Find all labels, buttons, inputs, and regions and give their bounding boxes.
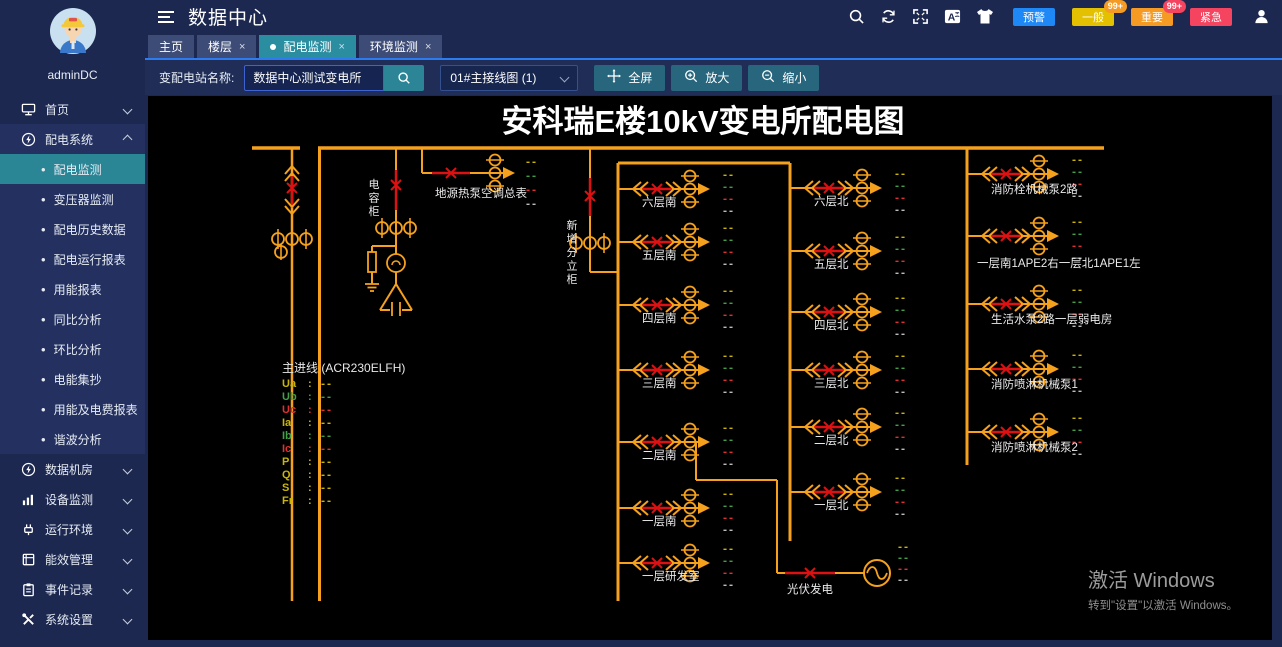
svg-text:--: --	[722, 387, 734, 398]
feeder-south-0[interactable]: --------六层南	[618, 170, 734, 217]
alarm-badges: 预警一般99+重要99+紧急	[1013, 8, 1232, 26]
svg-text:--: --	[525, 199, 537, 210]
zoom-out-icon	[761, 69, 775, 86]
badge-urgent[interactable]: 紧急	[1190, 8, 1232, 26]
svg-text:--: --	[320, 483, 332, 494]
sidebar-item-label: 配电系统	[45, 131, 93, 148]
device-icon	[20, 491, 36, 507]
feeder-north-0[interactable]: --------六层北	[790, 169, 906, 216]
svg-text:激活 Windows: 激活 Windows	[1088, 569, 1215, 592]
sidebar-item-label: 配电历史数据	[54, 221, 126, 238]
bullet-icon: •	[41, 193, 46, 206]
button-label: 全屏	[628, 69, 652, 86]
header-tools: A预警一般99+重要99+紧急	[848, 8, 1270, 26]
svg-text:三层南: 三层南	[642, 376, 677, 390]
sidebar-item-device-monitor[interactable]: 设备监测	[0, 484, 145, 514]
svg-text:--: --	[894, 408, 906, 419]
svg-text:二层南: 二层南	[642, 448, 677, 462]
feeder-north-3[interactable]: --------三层北	[790, 351, 906, 398]
sidebar-item-label: 电能集抄	[54, 371, 102, 388]
feeder-south-5[interactable]: --------一层南	[618, 489, 734, 536]
svg-text::: :	[308, 482, 312, 494]
svg-text:安科瑞E楼10kV变电所配电图: 安科瑞E楼10kV变电所配电图	[501, 104, 904, 139]
svg-text:--: --	[722, 459, 734, 470]
svg-text:--: --	[722, 375, 734, 386]
feeder-right-4[interactable]: --------消防喷淋机械泵2	[967, 413, 1083, 460]
sidebar-item-label: 配电监测	[54, 161, 102, 178]
power-icon	[20, 131, 36, 147]
svg-text:--: --	[894, 473, 906, 484]
svg-text:--: --	[1071, 167, 1083, 178]
svg-text:--: --	[722, 194, 734, 205]
capacitor-cabinet-branch[interactable]: 电容柜	[365, 148, 416, 316]
svg-text:--: --	[894, 420, 906, 431]
bullet-icon: •	[41, 433, 46, 446]
svg-text:--: --	[525, 157, 537, 168]
svg-text:--: --	[722, 544, 734, 555]
svg-text:--: --	[894, 193, 906, 204]
svg-text:--: --	[722, 259, 734, 270]
chevron-down-icon	[123, 465, 133, 475]
svg-text:三层北: 三层北	[814, 377, 849, 390]
svg-text:消防栓机械泵2路: 消防栓机械泵2路	[991, 182, 1078, 196]
feeder-south-3[interactable]: --------三层南	[618, 351, 734, 398]
svg-text:--: --	[894, 387, 906, 398]
settings-icon	[20, 611, 36, 627]
badge-label: 一般	[1082, 9, 1104, 25]
svg-text:六层北: 六层北	[814, 195, 849, 208]
svg-text:Fr: Fr	[282, 495, 294, 507]
sidebar-item-system-settings[interactable]: 系统设置	[0, 604, 145, 634]
sidebar-item-label: 首页	[45, 101, 69, 118]
svg-text:--: --	[722, 513, 734, 524]
feeder-north-2[interactable]: --------四层北	[790, 293, 906, 340]
active-dot-icon	[270, 44, 276, 50]
close-icon[interactable]: ×	[425, 41, 431, 53]
toolbar: 变配电站名称: 01#主接线图 (1) 全屏放大缩小	[145, 60, 1282, 95]
svg-text:--: --	[894, 497, 906, 508]
feeder-right-3[interactable]: --------消防喷淋机械泵1	[967, 350, 1083, 397]
bullet-icon: •	[41, 253, 46, 266]
refresh-icon[interactable]	[880, 8, 897, 25]
svg-text:--: --	[1071, 285, 1083, 296]
station-name-input[interactable]	[244, 65, 384, 91]
chevron-down-icon	[123, 615, 133, 625]
sidebar-item-power-monitor[interactable]: •配电监测	[0, 154, 145, 184]
svg-text:--: --	[320, 405, 332, 416]
badge-label: 重要	[1141, 9, 1163, 25]
svg-text:--: --	[894, 351, 906, 362]
badge-count: 99+	[1104, 0, 1127, 13]
svg-text:--: --	[320, 392, 332, 403]
diagram-select-value: 01#主接线图 (1)	[450, 69, 536, 86]
bullet-icon: •	[41, 373, 46, 386]
svg-text:光伏发电: 光伏发电	[787, 582, 833, 596]
svg-text:消防喷淋机械泵2: 消防喷淋机械泵2	[991, 440, 1078, 454]
svg-text:消防喷淋机械泵1: 消防喷淋机械泵1	[991, 377, 1078, 391]
feeder-right-1[interactable]: --------一层南1APE2右一层北1APE1左	[967, 217, 1141, 270]
sidebar-item-harmonic-analysis[interactable]: •谐波分析	[0, 424, 145, 454]
svg-text:--: --	[894, 375, 906, 386]
svg-text:--: --	[722, 556, 734, 567]
bullet-icon: •	[41, 223, 46, 236]
svg-text:四层北: 四层北	[814, 319, 849, 332]
sidebar-item-power-history[interactable]: •配电历史数据	[0, 214, 145, 244]
fullscreen-icon[interactable]	[912, 8, 929, 25]
sidebar: adminDC 首页配电系统•配电监测•变压器监测•配电历史数据•配电运行报表•…	[0, 0, 145, 647]
sidebar-item-label: 事件记录	[45, 581, 93, 598]
svg-text:--: --	[722, 501, 734, 512]
svg-text:--: --	[894, 181, 906, 192]
chevron-down-icon	[560, 73, 570, 83]
svg-text:--: --	[894, 244, 906, 255]
svg-text:柜: 柜	[369, 205, 380, 218]
data-room-icon	[20, 461, 36, 477]
sidebar-item-label: 用能及电费报表	[54, 401, 138, 418]
svg-text::: :	[308, 417, 312, 429]
main-incoming-panel: 主进线 (ACR230ELFH)Ua:--Ub:--Uc:--Ia:--Ib:-…	[282, 361, 405, 507]
sidebar-item-label: 环比分析	[54, 341, 102, 358]
svg-text:--: --	[320, 379, 332, 390]
svg-text:--: --	[894, 432, 906, 443]
app-root: { "sidebar": { "username": "adminDC", "i…	[0, 0, 1282, 647]
move-icon	[607, 69, 621, 86]
chevron-up-icon	[123, 135, 133, 145]
tab-env-monitor[interactable]: 环境监测×	[359, 35, 442, 58]
env-icon	[20, 521, 36, 537]
feeder-right-2[interactable]: --------生活水泵2路一层弱电房	[967, 285, 1112, 332]
svg-text:--: --	[722, 206, 734, 217]
svg-text:--: --	[1071, 425, 1083, 436]
feeder-south-4[interactable]: --------二层南	[618, 423, 734, 470]
diagram-title: 安科瑞E楼10kV变电所配电图	[501, 104, 904, 139]
bullet-icon: •	[41, 313, 46, 326]
tab-label: 配电监测	[283, 38, 331, 55]
svg-text:一层研发室: 一层研发室	[642, 569, 700, 583]
bullet-icon: •	[41, 163, 46, 176]
sidebar-item-label: 运行环境	[45, 521, 93, 538]
chevron-down-icon	[123, 555, 133, 565]
svg-text::: :	[308, 430, 312, 442]
svg-text:--: --	[320, 418, 332, 429]
svg-text:--: --	[722, 435, 734, 446]
sidebar-item-meter-reading[interactable]: •电能集抄	[0, 364, 145, 394]
svg-text:--: --	[722, 286, 734, 297]
badge-count: 99+	[1163, 0, 1186, 13]
sidebar-item-energy-mgmt[interactable]: 能效管理	[0, 544, 145, 574]
svg-text:--: --	[320, 470, 332, 481]
sidebar-item-label: 同比分析	[54, 311, 102, 328]
sidebar-item-label: 设备监测	[45, 491, 93, 508]
feeder-north-4[interactable]: --------二层北	[790, 408, 906, 455]
svg-text:一层北: 一层北	[814, 499, 849, 512]
svg-text:--: --	[894, 256, 906, 267]
sidebar-item-label: 配电运行报表	[54, 251, 126, 268]
sidebar-item-label: 数据机房	[45, 461, 93, 478]
feeder-north-1[interactable]: --------五层北	[790, 232, 906, 279]
badge-label: 紧急	[1200, 9, 1222, 25]
svg-text:容: 容	[369, 191, 380, 205]
feeder-right-0[interactable]: --------消防栓机械泵2路	[967, 155, 1083, 202]
svg-text:--: --	[722, 247, 734, 258]
svg-text:--: --	[894, 169, 906, 180]
zoom-in-icon	[684, 69, 698, 86]
svg-text:--: --	[897, 542, 909, 553]
top-header: 数据中心 A预警一般99+重要99+紧急	[145, 0, 1282, 33]
svg-text:--: --	[722, 525, 734, 536]
svg-text:生活水泵2路一层弱电房: 生活水泵2路一层弱电房	[991, 312, 1112, 326]
sidebar-item-yoy-analysis[interactable]: •同比分析	[0, 304, 145, 334]
bullet-icon: •	[41, 283, 46, 296]
svg-text:--: --	[722, 223, 734, 234]
svg-text:--: --	[1071, 350, 1083, 361]
svg-text:--: --	[1071, 413, 1083, 424]
svg-text:柜: 柜	[567, 273, 578, 286]
badge-warning[interactable]: 预警	[1013, 8, 1055, 26]
translate-icon[interactable]: A	[944, 8, 961, 25]
svg-text:--: --	[722, 235, 734, 246]
svg-text:--: --	[894, 268, 906, 279]
svg-text:--: --	[894, 485, 906, 496]
svg-text:转到"设置"以激活 Windows。: 转到"设置"以激活 Windows。	[1088, 598, 1238, 612]
svg-text:--: --	[894, 317, 906, 328]
svg-text:新: 新	[567, 218, 578, 232]
svg-text:--: --	[320, 431, 332, 442]
svg-text:--: --	[722, 363, 734, 374]
svg-text:--: --	[894, 329, 906, 340]
svg-text:立: 立	[567, 259, 578, 273]
svg-text:--: --	[722, 298, 734, 309]
svg-text:--: --	[722, 351, 734, 362]
sidebar-item-power-system[interactable]: 配电系统	[0, 124, 145, 154]
svg-text:--: --	[894, 293, 906, 304]
page-title: 数据中心	[188, 3, 268, 30]
sidebar-item-energy-fee-report[interactable]: •用能及电费报表	[0, 394, 145, 424]
svg-text:Ib: Ib	[282, 430, 292, 442]
diagram-canvas: 安科瑞E楼10kV变电所配电图电容柜--------地源热泵空调总表新增分立柜主…	[148, 96, 1272, 640]
svg-text:--: --	[722, 489, 734, 500]
tab-home[interactable]: 主页	[148, 35, 194, 58]
tab-power-monitor[interactable]: 配电监测×	[259, 35, 355, 58]
svg-text:Uc: Uc	[282, 404, 296, 416]
svg-text:--: --	[894, 509, 906, 520]
svg-text:五层北: 五层北	[814, 258, 849, 271]
sidebar-item-power-run-report[interactable]: •配电运行报表	[0, 244, 145, 274]
windows-watermark: 激活 Windows转到"设置"以激活 Windows。	[1088, 569, 1238, 612]
sidebar-item-event-log[interactable]: 事件记录	[0, 574, 145, 604]
bullet-icon: •	[41, 343, 46, 356]
tab-label: 主页	[159, 38, 183, 55]
svg-text:--: --	[722, 447, 734, 458]
button-label: 放大	[705, 69, 729, 86]
svg-text:主进线 (ACR230ELFH): 主进线 (ACR230ELFH)	[282, 361, 405, 375]
svg-text:--: --	[320, 496, 332, 507]
feeder-north-5[interactable]: --------一层北	[790, 473, 906, 520]
sidebar-item-runtime-env[interactable]: 运行环境	[0, 514, 145, 544]
feeder-south-6[interactable]: --------一层研发室	[618, 544, 734, 591]
svg-text:--: --	[1071, 241, 1083, 252]
ground-source-pump-feeder[interactable]: --------地源热泵空调总表	[422, 148, 537, 210]
station-search-button[interactable]	[384, 65, 424, 91]
badge-label: 预警	[1023, 9, 1045, 25]
svg-text:一层南1APE2右一层北1APE1左: 一层南1APE2右一层北1APE1左	[977, 256, 1141, 270]
svg-text:--: --	[525, 171, 537, 182]
theme-icon[interactable]	[976, 8, 994, 25]
close-icon[interactable]: ×	[239, 41, 245, 53]
chevron-down-icon	[123, 105, 133, 115]
svg-text:四层南: 四层南	[642, 311, 677, 325]
svg-text::: :	[308, 456, 312, 468]
zoom-out-button[interactable]: 缩小	[748, 65, 819, 91]
tab-label: 楼层	[208, 38, 232, 55]
sidebar-item-home[interactable]: 首页	[0, 94, 145, 124]
feeder-south-1[interactable]: --------五层南	[618, 223, 734, 270]
svg-text:--: --	[1071, 229, 1083, 240]
sidebar-item-transformer-monitor[interactable]: •变压器监测	[0, 184, 145, 214]
svg-text::: :	[308, 443, 312, 455]
energy-icon	[20, 551, 36, 567]
svg-text:电: 电	[369, 178, 380, 191]
avatar[interactable]	[50, 8, 96, 54]
svg-text:--: --	[320, 457, 332, 468]
svg-text::: :	[308, 469, 312, 481]
svg-text:--: --	[894, 444, 906, 455]
svg-text:--: --	[897, 553, 909, 564]
sidebar-item-label: 能效管理	[45, 551, 93, 568]
badge-important[interactable]: 重要99+	[1131, 8, 1173, 26]
svg-text:A: A	[948, 12, 956, 23]
svg-text:--: --	[897, 575, 909, 586]
svg-text:--: --	[722, 322, 734, 333]
svg-text:--: --	[722, 170, 734, 181]
svg-text:--: --	[1071, 362, 1083, 373]
avatar-wrap: adminDC	[0, 0, 145, 82]
svg-text:--: --	[897, 564, 909, 575]
main-area: 数据中心 A预警一般99+重要99+紧急 主页楼层×配电监测×环境监测× 变配电…	[145, 0, 1282, 647]
bullet-icon: •	[41, 403, 46, 416]
sidebar-item-label: 变压器监测	[54, 191, 114, 208]
svg-text:Ic: Ic	[282, 443, 291, 455]
chevron-down-icon	[123, 525, 133, 535]
svg-text:分: 分	[567, 246, 578, 259]
svg-text:S: S	[282, 482, 289, 494]
event-icon	[20, 581, 36, 597]
svg-text::: :	[308, 404, 312, 416]
svg-text:--: --	[1071, 155, 1083, 166]
svg-text:--: --	[722, 182, 734, 193]
chevron-down-icon	[123, 495, 133, 505]
sidebar-menu: 首页配电系统•配电监测•变压器监测•配电历史数据•配电运行报表•用能报表•同比分…	[0, 94, 145, 634]
svg-text:P: P	[282, 456, 289, 468]
svg-text:--: --	[894, 363, 906, 374]
close-icon[interactable]: ×	[338, 41, 344, 53]
username: adminDC	[0, 68, 145, 82]
sidebar-item-label: 谐波分析	[54, 431, 102, 448]
sidebar-group-power-system: 配电系统•配电监测•变压器监测•配电历史数据•配电运行报表•用能报表•同比分析•…	[0, 124, 145, 454]
button-label: 缩小	[782, 69, 806, 86]
sidebar-item-data-room[interactable]: 数据机房	[0, 454, 145, 484]
svg-text:Ub: Ub	[282, 391, 297, 403]
svg-text:--: --	[894, 232, 906, 243]
sidebar-item-label: 系统设置	[45, 611, 93, 628]
tab-label: 环境监测	[370, 38, 418, 55]
single-line-diagram: 安科瑞E楼10kV变电所配电图电容柜--------地源热泵空调总表新增分立柜主…	[148, 96, 1272, 641]
svg-text:地源热泵空调总表: 地源热泵空调总表	[435, 186, 527, 200]
search-icon[interactable]	[848, 8, 865, 25]
zoom-in-button[interactable]: 放大	[671, 65, 742, 91]
svg-text::: :	[308, 378, 312, 390]
svg-text:Ia: Ia	[282, 417, 292, 429]
chevron-down-icon	[123, 585, 133, 595]
svg-text:增: 增	[567, 232, 578, 246]
sidebar-item-mom-analysis[interactable]: •环比分析	[0, 334, 145, 364]
svg-text:--: --	[722, 568, 734, 579]
svg-text:六层南: 六层南	[642, 195, 677, 209]
svg-text:--: --	[722, 310, 734, 321]
svg-text:--: --	[1071, 297, 1083, 308]
tab-bar: 主页楼层×配电监测×环境监测×	[145, 33, 1282, 58]
station-search-box	[244, 65, 424, 91]
svg-text:--: --	[320, 444, 332, 455]
svg-text:--: --	[722, 423, 734, 434]
svg-text:Q: Q	[282, 469, 291, 481]
badge-normal[interactable]: 一般99+	[1072, 8, 1114, 26]
svg-text:--: --	[894, 305, 906, 316]
diagram-select[interactable]: 01#主接线图 (1)	[440, 65, 578, 91]
svg-text::: :	[308, 391, 312, 403]
svg-text:--: --	[1071, 217, 1083, 228]
svg-text:--: --	[894, 205, 906, 216]
svg-text:五层南: 五层南	[642, 248, 677, 262]
home-icon	[20, 101, 36, 117]
svg-text:Ua: Ua	[282, 378, 297, 390]
station-name-label: 变配电站名称:	[159, 69, 234, 86]
svg-text::: :	[308, 495, 312, 507]
toolbar-buttons: 全屏放大缩小	[588, 65, 819, 91]
user-icon[interactable]	[1253, 8, 1270, 25]
svg-text:--: --	[722, 580, 734, 591]
tab-floor[interactable]: 楼层×	[197, 35, 256, 58]
new-cabinet-branch[interactable]: 新增分立柜	[567, 148, 619, 286]
fullscreen-button[interactable]: 全屏	[594, 65, 665, 91]
menu-toggle-icon[interactable]	[157, 10, 175, 24]
svg-text:一层南: 一层南	[642, 514, 677, 528]
sidebar-item-energy-report[interactable]: •用能报表	[0, 274, 145, 304]
sidebar-item-label: 用能报表	[54, 281, 102, 298]
svg-text:二层北: 二层北	[814, 434, 849, 447]
feeder-south-2[interactable]: --------四层南	[618, 286, 734, 333]
